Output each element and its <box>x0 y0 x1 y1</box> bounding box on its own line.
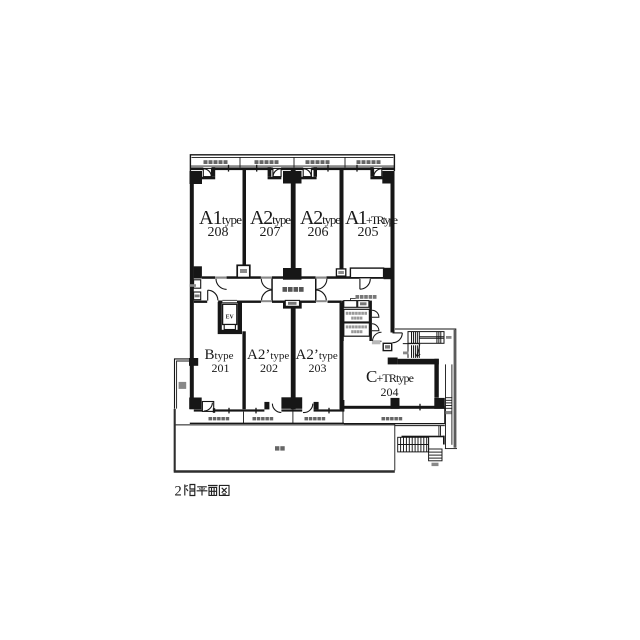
svg-text:207: 207 <box>260 225 281 240</box>
svg-text:2: 2 <box>175 483 182 499</box>
svg-text:201: 201 <box>212 361 230 375</box>
svg-text:204: 204 <box>381 385 399 399</box>
svg-text:208: 208 <box>208 225 229 240</box>
svg-text:203: 203 <box>309 361 327 375</box>
svg-text:EV: EV <box>226 314 235 320</box>
svg-text:202: 202 <box>260 361 278 375</box>
svg-text:205: 205 <box>358 225 379 240</box>
svg-text:206: 206 <box>308 225 329 240</box>
